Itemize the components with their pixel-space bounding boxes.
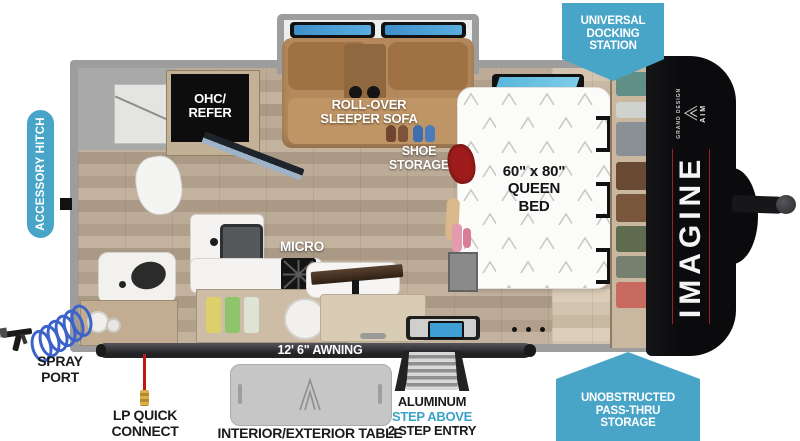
bed-label: 60" x 80" QUEEN BED: [478, 163, 590, 215]
lp-line1: LP QUICK: [85, 408, 205, 424]
accessory-hitch-text: ACCESSORY HITCH: [35, 117, 47, 231]
wardrobe-jeans: [616, 122, 648, 156]
brand-imagine: IMAGINE: [674, 155, 707, 318]
micro-label: MICRO: [262, 240, 342, 255]
wardrobe-folded: [616, 256, 648, 278]
cutting-board-green: [225, 297, 240, 333]
sofa-label: ROLL-OVER SLEEPER SOFA: [296, 98, 442, 127]
step-line3: 2 STEP ENTRY: [383, 424, 481, 439]
shoe-blue-1: [413, 125, 423, 142]
pink-bottle-1: [452, 224, 462, 252]
shoe-brown-1: [386, 125, 396, 142]
brand-maker: GRAND DESIGN: [676, 88, 682, 139]
shoe-blue-2: [425, 125, 435, 142]
hitch-coupler: [776, 195, 796, 214]
wardrobe-linens: [616, 102, 648, 118]
sofa-label-line2: SLEEPER SOFA: [296, 112, 442, 126]
lp-line2: CONNECT: [85, 424, 205, 440]
badge-pass-thru-storage: UNOBSTRUCTED PASS-THRU STORAGE: [556, 352, 700, 441]
bed-clip-2: [596, 182, 611, 218]
sofa-label-line1: ROLL-OVER: [296, 98, 442, 112]
shoe-brown-2: [398, 125, 408, 142]
brand-block: IMAGINE GRAND DESIGN AIM: [646, 56, 736, 356]
step-line2: STEP ABOVE: [383, 410, 481, 425]
ohc-refer-line2: REFER: [171, 106, 249, 120]
tp-roll-small: [106, 318, 121, 333]
bed-clip-1: [596, 116, 611, 152]
step-treads: [406, 352, 458, 390]
lp-quick-connect-label: LP QUICK CONNECT: [85, 408, 205, 439]
brand-model: AIM: [700, 104, 707, 123]
bed-label-line2: QUEEN: [478, 180, 590, 197]
table-handle-left: [238, 384, 242, 404]
stored-table-handle: [360, 333, 386, 339]
wardrobe-clothes: [616, 226, 648, 252]
awning-label-text: 12' 6" AWNING: [277, 343, 362, 357]
kitchen-faucet: [210, 238, 218, 246]
lp-line: [143, 354, 146, 392]
table-handle-right: [378, 384, 382, 404]
passthru-line2: PASS-THRU: [596, 405, 660, 418]
slide-window-left-glass: [294, 25, 371, 35]
speaker-dot-2: [526, 327, 531, 332]
accessory-hitch-receiver: [60, 198, 72, 210]
udock-line3: STATION: [589, 40, 636, 53]
entry-door-window: [428, 321, 464, 339]
spray-port-label: SPRAY PORT: [10, 354, 110, 385]
pink-bottle-2: [463, 228, 471, 248]
passthru-line1: UNOBSTRUCTED: [581, 392, 675, 405]
sofa-bolster-right: [388, 42, 468, 90]
awning-endcap-right: [524, 344, 536, 357]
ohc-refer-line1: OHC/: [171, 92, 249, 106]
storage-bin: [448, 252, 478, 292]
wardrobe-slippers: [616, 282, 648, 308]
step-entry-label: ALUMINUM STEP ABOVE 2 STEP ENTRY: [383, 395, 481, 439]
spray-port-line1: SPRAY: [10, 354, 110, 370]
floorplan-canvas: OHC/ REFER ROLL-OVER SLEEPER SOFA SHOE S…: [0, 0, 800, 441]
badge-accessory-hitch: ACCESSORY HITCH: [27, 110, 54, 238]
bed-label-line1: 60" x 80": [478, 163, 590, 180]
speaker-dot-1: [512, 327, 517, 332]
wardrobe-shoes-1: [616, 162, 648, 190]
ohc-refer-label: OHC/ REFER: [171, 92, 249, 121]
bed-label-line3: BED: [478, 198, 590, 215]
headboard-window-glass: [496, 77, 579, 87]
brand-rotated: IMAGINE GRAND DESIGN AIM: [672, 88, 710, 324]
cutting-board-yellow: [206, 297, 221, 333]
grand-design-arrow-icon: [684, 104, 698, 122]
vanity-faucet: [119, 281, 126, 288]
spray-port-line2: PORT: [10, 370, 110, 386]
udock-line1: UNIVERSAL: [581, 15, 646, 28]
speaker-dot-3: [540, 327, 545, 332]
slide-window-right-glass: [385, 25, 462, 35]
micro-label-text: MICRO: [280, 239, 324, 254]
wardrobe-shoes-2: [616, 194, 648, 222]
shower: [114, 84, 174, 144]
cutting-board-white: [244, 297, 259, 333]
lp-connector: [140, 390, 149, 406]
table-label-text: INTERIOR/EXTERIOR TABLE: [218, 425, 403, 441]
passthru-line3: STORAGE: [600, 417, 655, 430]
bed-clip-3: [596, 248, 611, 284]
table-logo-icon: [296, 376, 324, 412]
udock-line2: DOCKING: [587, 28, 640, 41]
awning-label: 12' 6" AWNING: [240, 344, 400, 358]
step-line1: ALUMINUM: [383, 395, 481, 410]
